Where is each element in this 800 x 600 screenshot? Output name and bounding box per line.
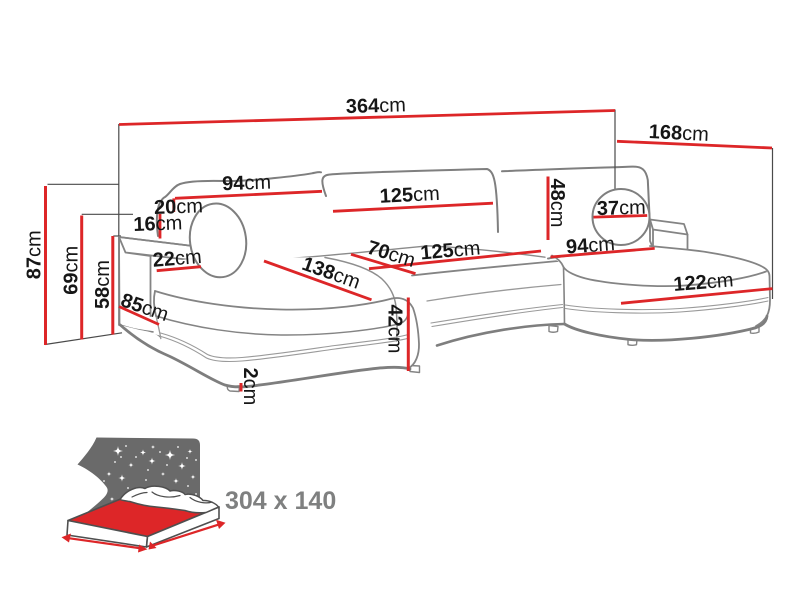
svg-text:304 x 140: 304 x 140 [225,487,336,515]
svg-text:22cm: 22cm [152,246,202,272]
svg-text:122cm: 122cm [673,269,735,296]
svg-text:87cm: 87cm [24,230,46,279]
svg-text:94cm: 94cm [565,233,615,258]
svg-text:42cm: 42cm [384,305,406,354]
svg-text:16cm: 16cm [133,212,183,236]
svg-text:58cm: 58cm [92,260,114,309]
svg-text:364cm: 364cm [346,94,407,118]
svg-text:168cm: 168cm [648,121,709,146]
svg-text:37cm: 37cm [597,197,646,220]
svg-text:48cm: 48cm [546,179,568,228]
svg-text:94cm: 94cm [222,172,272,196]
svg-text:2cm: 2cm [239,368,261,406]
svg-text:69cm: 69cm [61,246,83,295]
svg-text:125cm: 125cm [379,183,440,208]
